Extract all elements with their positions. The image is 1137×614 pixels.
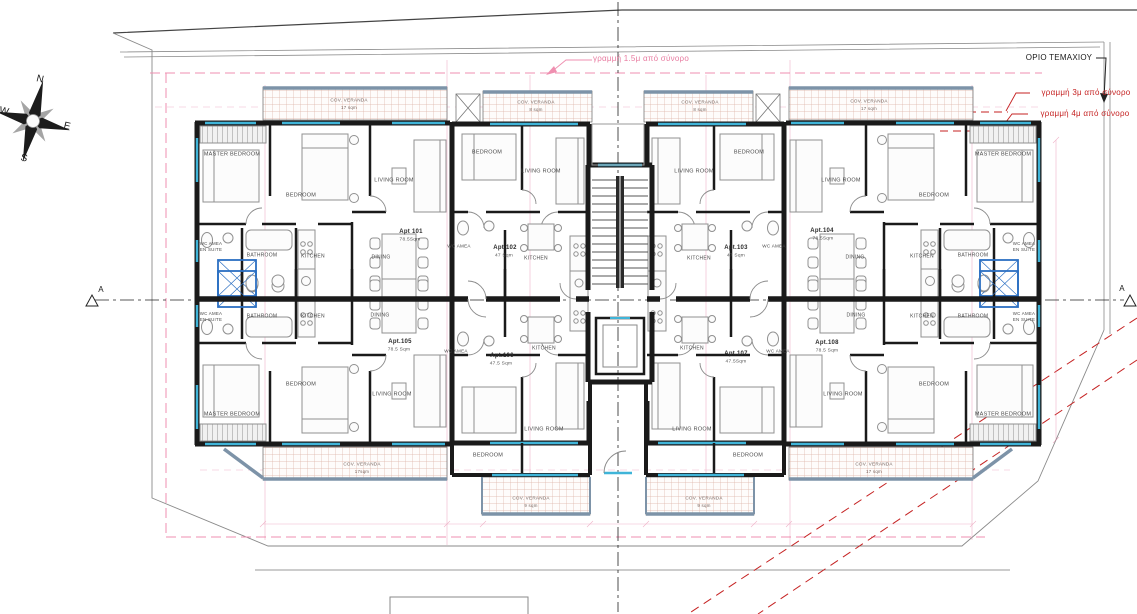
room-label-living-room: LIVING ROOM	[521, 169, 560, 175]
room-label-en-suite: EN SUITE	[1013, 318, 1035, 322]
room-label-dining: DINING	[847, 314, 866, 319]
room-label-bedroom: BEDROOM	[919, 382, 949, 388]
apt-id-107: Apt.107	[724, 351, 747, 357]
apt-area-108: 78.5 Sqm	[816, 350, 839, 355]
room-label-kitchen: KITCHEN	[687, 257, 711, 262]
veranda-area: 17 sqm	[861, 107, 877, 111]
room-label-wc-amea: WC AMEA	[1013, 312, 1036, 316]
room-label-bathroom: BATHROOM	[247, 254, 278, 259]
setback-3m-label: γραμμή 3μ από σύνορο	[1042, 89, 1131, 97]
room-label-wc-amea: WC AMEA	[447, 245, 470, 250]
room-label-bedroom: BEDROOM	[286, 193, 316, 199]
room-label-bedroom: BEDROOM	[473, 453, 503, 459]
apt-id-103: Apt.103	[724, 245, 747, 251]
room-label-kitchen: KITCHEN	[532, 347, 556, 352]
room-label-bathroom: BATHROOM	[958, 315, 989, 320]
room-label-master-bedroom: MASTER BEDROOM	[204, 152, 260, 158]
section-marker-label-left: A	[98, 286, 104, 294]
room-label-bedroom: BEDROOM	[733, 453, 763, 459]
compass-south-label: S	[19, 153, 28, 164]
room-label-bedroom: BEDROOM	[919, 193, 949, 199]
room-label-living-room: LIVING ROOM	[821, 178, 860, 184]
parcel-boundary-label: ΟΡΙΟ ΤΕΜΑΧΙΟΥ	[1026, 54, 1092, 62]
room-label-wc-amea: WC AMEA	[444, 350, 467, 355]
room-label-living-room: LIVING ROOM	[674, 169, 713, 175]
apt-id-106: Apt.106	[490, 353, 513, 359]
room-label-living-room: LIVING ROOM	[524, 427, 563, 433]
apt-area-102: 47 Sqm	[495, 255, 513, 260]
room-label-kitchen: KITCHEN	[910, 315, 934, 320]
veranda-label: COV. VERANDA	[685, 497, 722, 502]
room-label-dining: DINING	[372, 256, 391, 261]
veranda-label: COV. VERANDA	[850, 100, 887, 105]
room-label-en-suite: EN SUITE	[200, 248, 222, 252]
apt-id-105: Apt.105	[388, 339, 411, 345]
room-label-kitchen: KITCHEN	[301, 315, 325, 320]
veranda-label: COV. VERANDA	[330, 99, 367, 104]
room-label-living-room: LIVING ROOM	[372, 392, 411, 398]
room-label-bedroom: BEDROOM	[286, 382, 316, 388]
section-marker-label-right: A	[1119, 285, 1125, 293]
veranda-area: 17 sqm	[341, 106, 357, 110]
apt-id-108: Apt.108	[815, 340, 838, 346]
veranda-area: 8 sqm	[529, 108, 542, 112]
room-label-master-bedroom: MASTER BEDROOM	[975, 412, 1031, 418]
room-label-wc-amea: WC AMEA	[762, 245, 785, 250]
setback-4m-label: γραμμή 4μ από σύνορο	[1041, 110, 1130, 118]
apt-area-106: 47.5 Sqm	[490, 363, 513, 368]
room-label-master-bedroom: MASTER BEDROOM	[204, 412, 260, 418]
veranda-label: COV. VERANDA	[681, 101, 718, 106]
veranda-area: 9 sqm	[697, 504, 710, 508]
apt-area-104: 78.5Sqm	[813, 238, 834, 243]
room-label-kitchen: KITCHEN	[524, 257, 548, 262]
setback-1-5m-label: γραμμή 1.5μ από σύνορο	[593, 55, 689, 63]
room-label-bathroom: BATHROOM	[247, 315, 278, 320]
room-label-kitchen: KITCHEN	[910, 255, 934, 260]
veranda-label: COV. VERANDA	[855, 463, 892, 468]
veranda-area: 9 sqm	[524, 504, 537, 508]
room-label-master-bedroom: MASTER BEDROOM	[975, 152, 1031, 158]
room-label-living-room: LIVING ROOM	[374, 178, 413, 184]
room-label-wc-amea: WC AMEA	[200, 312, 223, 316]
room-label-dining: DINING	[846, 256, 865, 261]
room-label-kitchen: KITCHEN	[301, 255, 325, 260]
veranda-label: COV. VERANDA	[517, 101, 554, 106]
room-label-wc-amea: WC AMEA	[200, 242, 223, 246]
apt-id-102: Apt.102	[493, 245, 516, 251]
room-label-kitchen: KITCHEN	[680, 347, 704, 352]
room-label-living-room: LIVING ROOM	[672, 427, 711, 433]
compass-west-label: W	[0, 106, 10, 118]
room-label-living-room: LIVING ROOM	[823, 392, 862, 398]
room-label-en-suite: EN SUITE	[1013, 248, 1035, 252]
veranda-label: COV. VERANDA	[343, 463, 380, 468]
apt-id-104: Apt.104	[810, 228, 833, 234]
apt-id-101: Apt 101	[399, 229, 422, 235]
veranda-area: 17sqm	[355, 470, 369, 474]
veranda-area: 17 sqm	[866, 470, 882, 474]
apt-area-105: 78.5 Sqm	[388, 349, 411, 354]
room-label-bedroom: BEDROOM	[472, 150, 502, 156]
room-label-dining: DINING	[371, 314, 390, 319]
room-label-en-suite: EN SUITE	[200, 318, 222, 322]
room-label-bathroom: BATHROOM	[958, 254, 989, 259]
room-label-wc-amea: WC AMEA	[1013, 242, 1036, 246]
label-layer: MASTER BEDROOMBEDROOMLIVING ROOMBATHROOM…	[0, 0, 1137, 614]
compass-east-label: E	[62, 121, 71, 132]
apt-area-103: 47 Sqm	[727, 255, 745, 260]
compass-north-label: N	[35, 74, 45, 86]
floorplan-canvas: MASTER BEDROOMBEDROOMLIVING ROOMBATHROOM…	[0, 0, 1137, 614]
apt-area-107: 47.5Sqm	[726, 361, 747, 366]
apt-area-101: 78.5Sqm	[400, 239, 421, 244]
room-label-wc-amea: WC AMEA	[766, 350, 789, 355]
room-label-bedroom: BEDROOM	[734, 150, 764, 156]
veranda-label: COV. VERANDA	[512, 497, 549, 502]
veranda-area: 8 sqm	[693, 108, 706, 112]
